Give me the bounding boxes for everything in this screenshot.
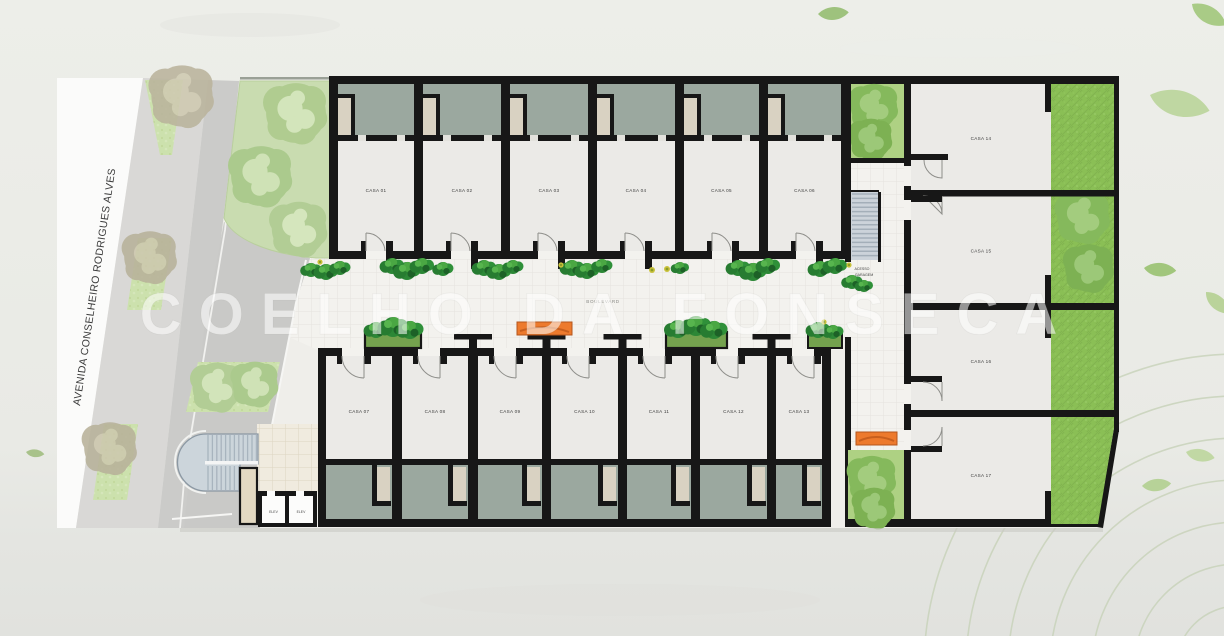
svg-text:CASA 13: CASA 13 xyxy=(789,409,810,414)
svg-text:CASA 15: CASA 15 xyxy=(971,249,992,254)
svg-text:CASA 03: CASA 03 xyxy=(539,188,560,193)
svg-text:CASA 16: CASA 16 xyxy=(971,359,992,364)
svg-text:CASA 12: CASA 12 xyxy=(723,409,744,414)
svg-text:CASA 01: CASA 01 xyxy=(366,188,387,193)
svg-text:CASA 07: CASA 07 xyxy=(349,409,370,414)
svg-text:CASA 09: CASA 09 xyxy=(500,409,521,414)
svg-text:CASA 04: CASA 04 xyxy=(626,188,647,193)
svg-text:CASA 02: CASA 02 xyxy=(452,188,473,193)
svg-text:ELEV: ELEV xyxy=(297,510,306,514)
svg-text:CASA 14: CASA 14 xyxy=(971,136,992,141)
svg-text:GARAGEM: GARAGEM xyxy=(855,273,873,277)
svg-text:CASA 10: CASA 10 xyxy=(574,409,595,414)
svg-text:ELEV: ELEV xyxy=(269,510,278,514)
svg-text:ACESSO: ACESSO xyxy=(855,267,870,271)
svg-text:CASA 05: CASA 05 xyxy=(711,188,732,193)
svg-text:CASA 11: CASA 11 xyxy=(649,409,670,414)
svg-text:CASA 08: CASA 08 xyxy=(425,409,446,414)
svg-text:CASA 06: CASA 06 xyxy=(794,188,815,193)
svg-text:COELHO DA FONSECA: COELHO DA FONSECA xyxy=(140,282,1075,347)
svg-text:CASA 17: CASA 17 xyxy=(971,473,992,478)
